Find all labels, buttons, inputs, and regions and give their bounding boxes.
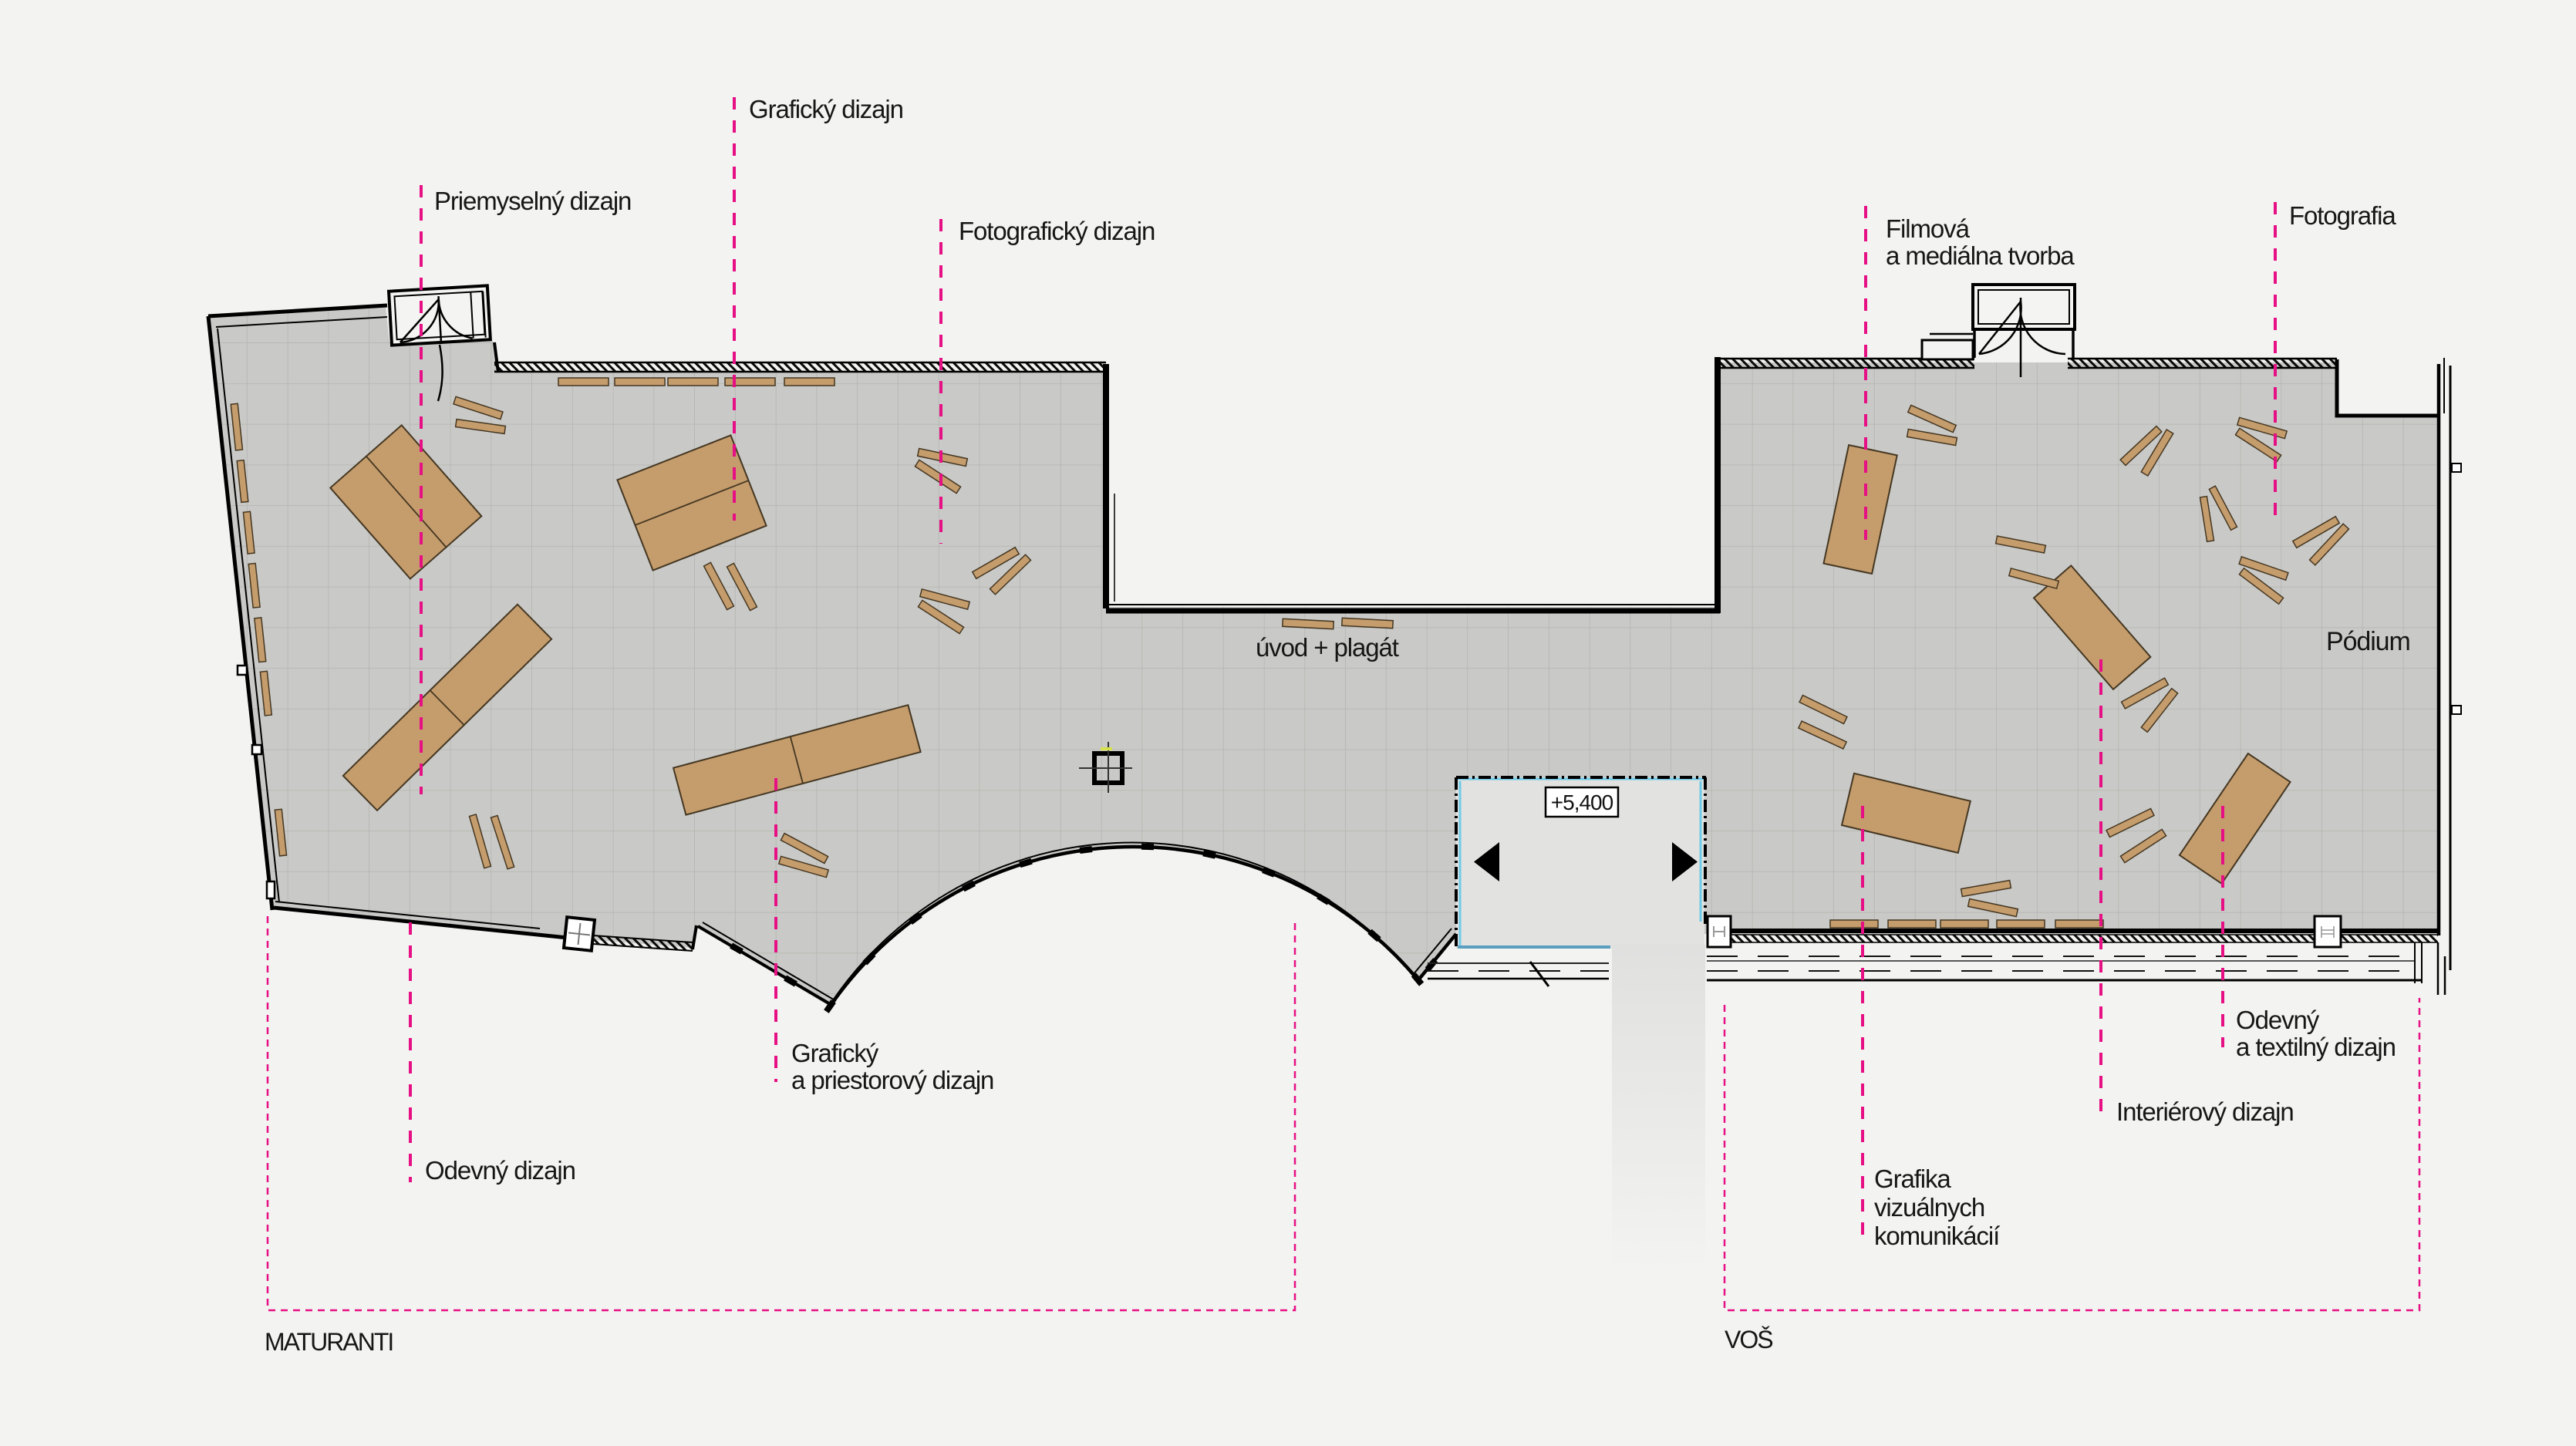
svg-text:Fotografia: Fotografia [2289, 201, 2396, 230]
svg-text:Priemyselný dizajn: Priemyselný dizajn [434, 187, 631, 215]
svg-text:+5,400: +5,400 [1551, 790, 1613, 814]
svg-text:VOŠ: VOŠ [1725, 1326, 1772, 1353]
svg-text:Grafický dizajn: Grafický dizajn [749, 95, 903, 123]
svg-text:Pódium: Pódium [2326, 627, 2410, 656]
svg-text:MATURANTI: MATURANTI [265, 1328, 393, 1356]
svg-text:Odevný dizajn: Odevný dizajn [425, 1156, 575, 1185]
svg-text:úvod + plagát: úvod + plagát [1256, 633, 1399, 662]
svg-text:Interiérový dizajn: Interiérový dizajn [2116, 1097, 2294, 1126]
svg-text:Fotografický dizajn: Fotografický dizajn [959, 217, 1155, 245]
